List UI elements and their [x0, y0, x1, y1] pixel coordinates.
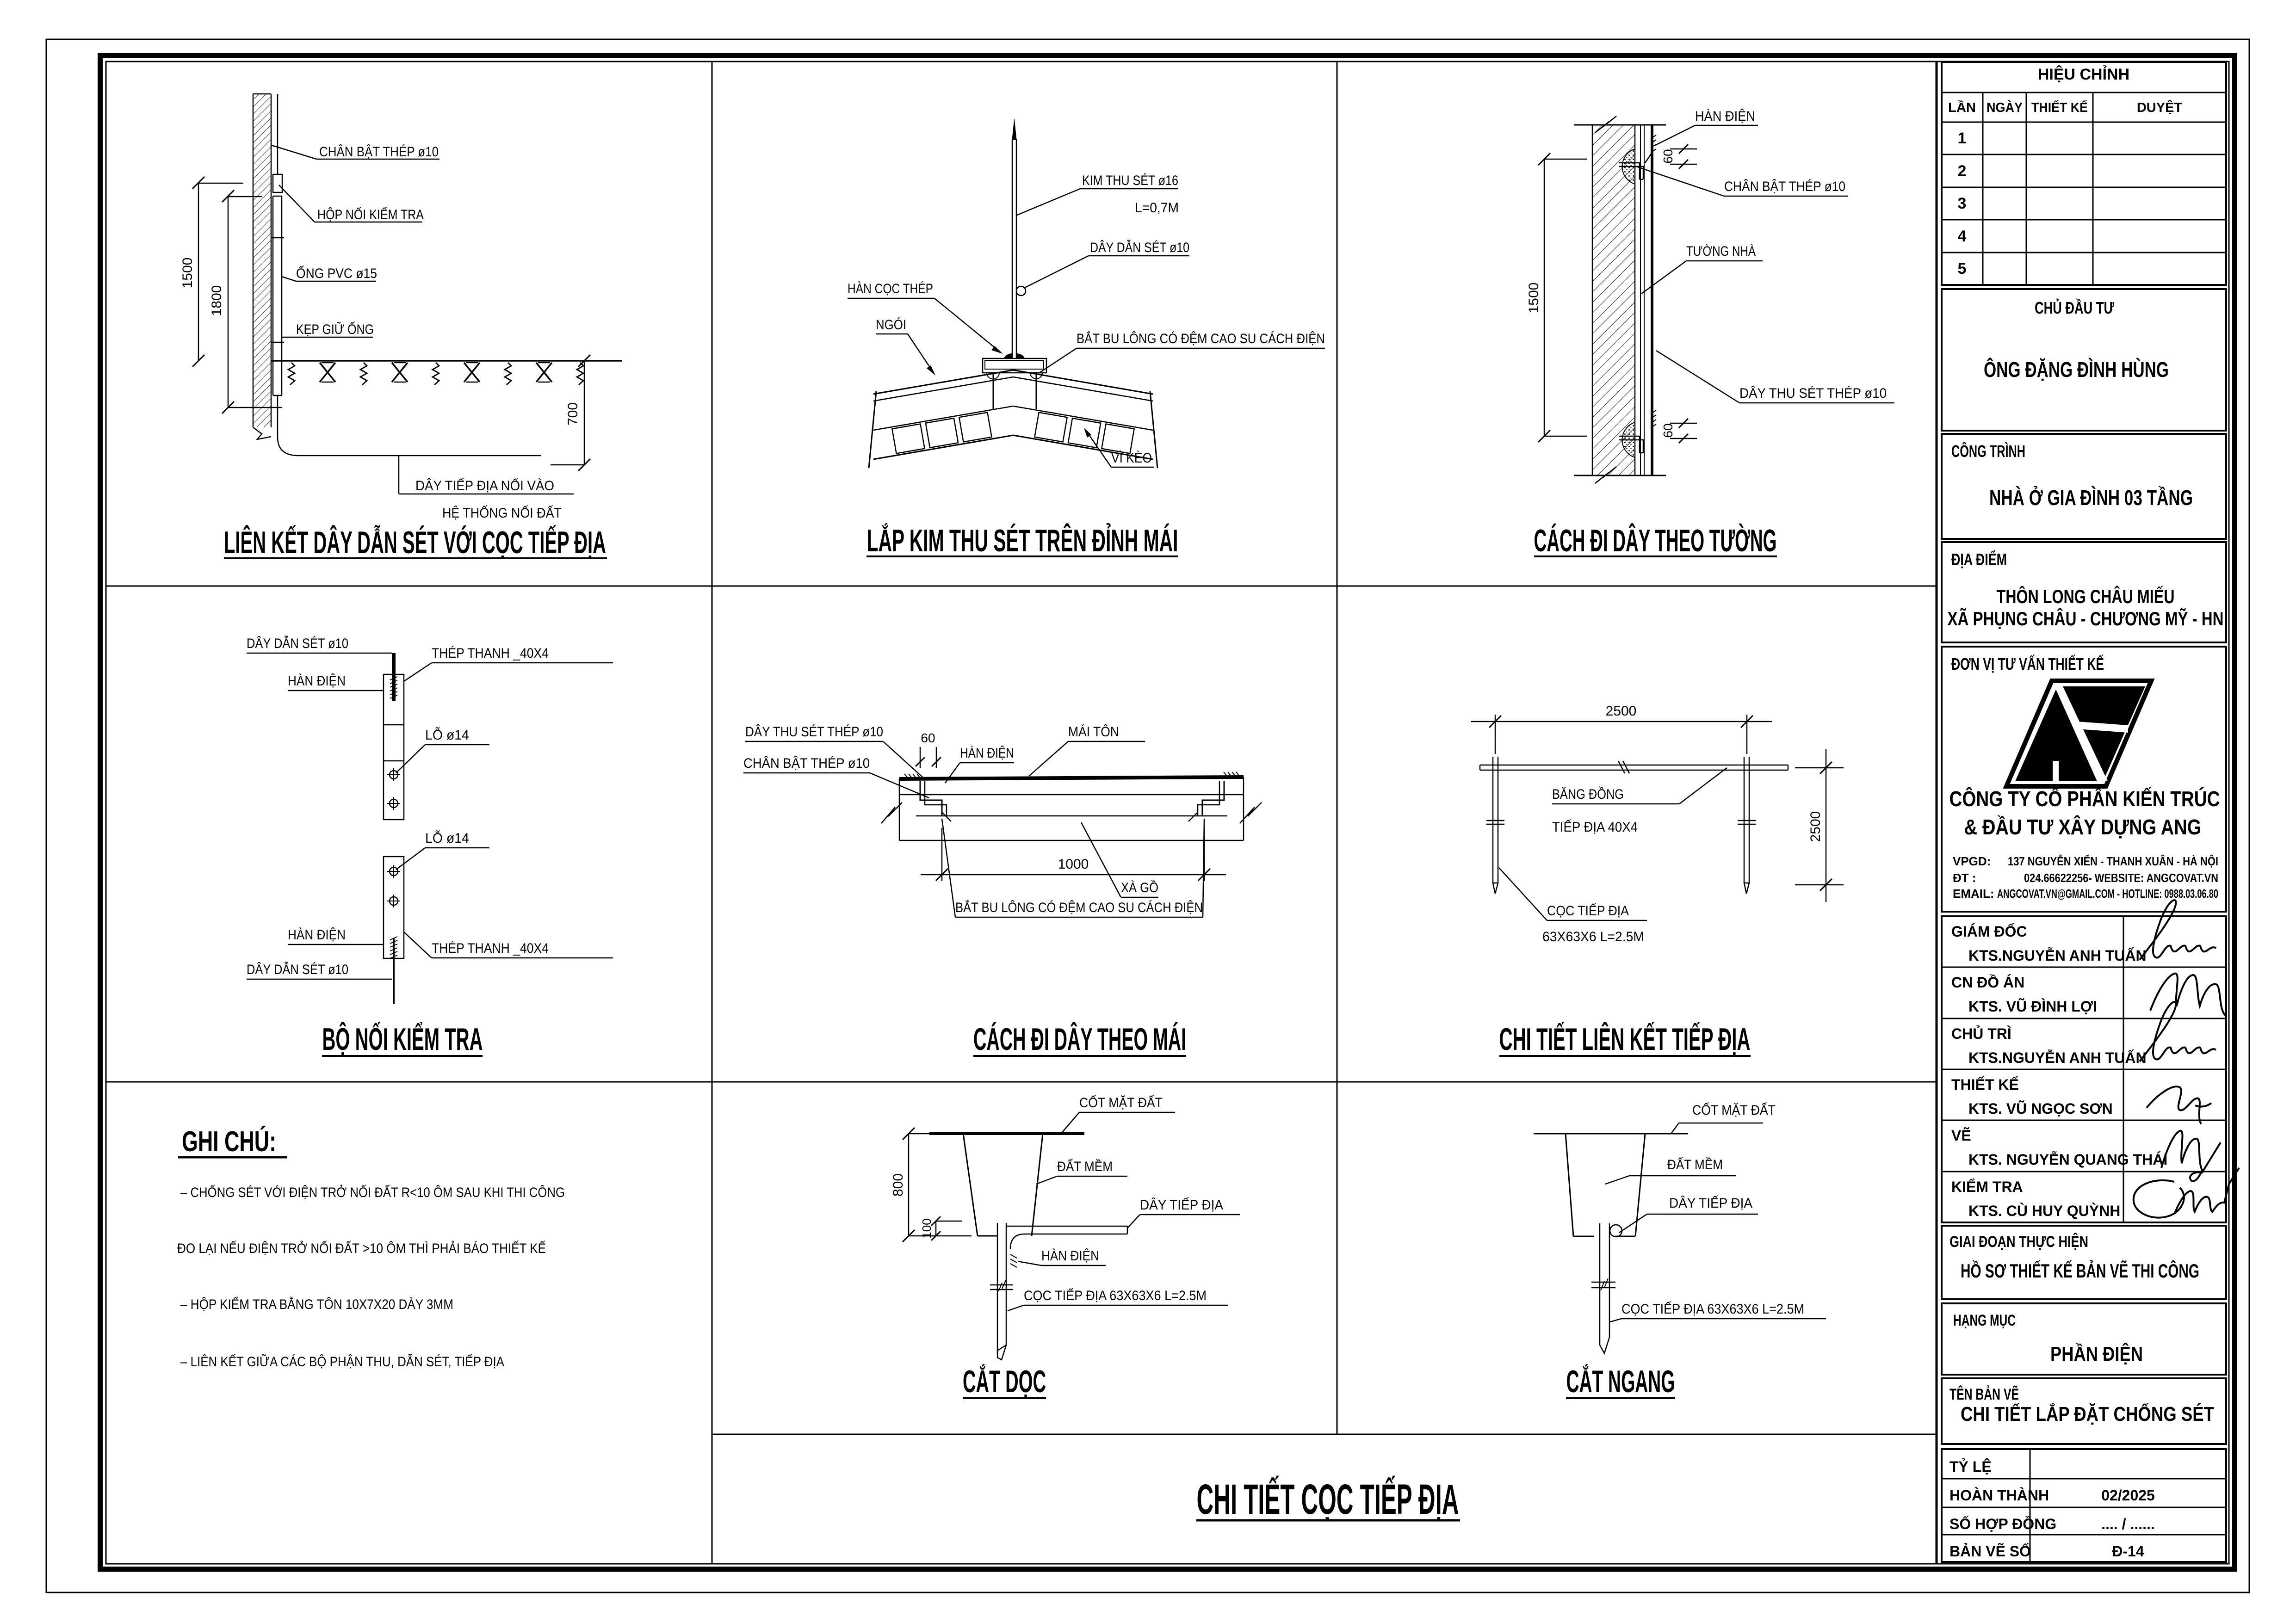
svg-text:CHỦ TRÌ: CHỦ TRÌ	[1951, 1025, 2011, 1042]
svg-text:HÀN ĐIỆN: HÀN ĐIỆN	[960, 746, 1014, 761]
svg-text:ÔNG ĐẶNG ĐÌNH HÙNG: ÔNG ĐẶNG ĐÌNH HÙNG	[1984, 358, 2169, 382]
svg-text:CN ĐỒ ÁN: CN ĐỒ ÁN	[1951, 974, 2024, 991]
svg-text:KIỂM TRA: KIỂM TRA	[1951, 1179, 2023, 1195]
svg-text:XÀ GỒ: XÀ GỒ	[1121, 880, 1158, 895]
svg-text:NHÀ Ở GIA ĐÌNH 03 TẦNG: NHÀ Ở GIA ĐÌNH 03 TẦNG	[1989, 486, 2193, 510]
svg-text:KTS. NGUYỄN QUANG THÁI: KTS. NGUYỄN QUANG THÁI	[1968, 1151, 2167, 1168]
svg-text:KẸP GIỮ ỐNG: KẸP GIỮ ỐNG	[296, 321, 374, 337]
svg-text:2500: 2500	[1606, 704, 1637, 719]
svg-text:HỒ SƠ THIẾT KẾ BẢN VẼ THI CÔNG: HỒ SƠ THIẾT KẾ BẢN VẼ THI CÔNG	[1961, 1259, 2199, 1282]
svg-text:60: 60	[1661, 423, 1675, 438]
svg-text:CHÂN BẬT THÉP ø10: CHÂN BẬT THÉP ø10	[319, 144, 439, 160]
svg-text:LẮP KIM THU SÉT TRÊN ĐỈNH MÁI: LẮP KIM THU SÉT TRÊN ĐỈNH MÁI	[867, 523, 1178, 558]
svg-text:GHI CHÚ:: GHI CHÚ:	[182, 1126, 276, 1158]
svg-text:TƯỜNG NHÀ: TƯỜNG NHÀ	[1686, 244, 1756, 259]
svg-text:CHỦ ĐẦU TƯ: CHỦ ĐẦU TƯ	[2035, 298, 2114, 317]
svg-text:DÂY THU SÉT THÉP ø10: DÂY THU SÉT THÉP ø10	[1739, 386, 1887, 401]
svg-text:HỆ THỐNG NỐI ĐẤT: HỆ THỐNG NỐI ĐẤT	[442, 505, 562, 521]
svg-text:BẮT BU LÔNG CÓ ĐỆM CAO SU CÁCH: BẮT BU LÔNG CÓ ĐỆM CAO SU CÁCH ĐIỆN	[955, 900, 1203, 915]
svg-text:SỐ HỢP ĐỒNG: SỐ HỢP ĐỒNG	[1949, 1516, 2056, 1532]
svg-text:700: 700	[565, 402, 581, 426]
svg-text:60: 60	[921, 731, 935, 745]
svg-text:DÂY TIẾP ĐỊA: DÂY TIẾP ĐỊA	[1140, 1197, 1223, 1213]
svg-text:DÂY DẪN SÉT ø10: DÂY DẪN SÉT ø10	[247, 962, 348, 977]
svg-text:LỖ ø14: LỖ ø14	[425, 830, 469, 846]
svg-text:DÂY DẪN SÉT ø10: DÂY DẪN SÉT ø10	[1090, 240, 1189, 255]
svg-text:.... / ......: .... / ......	[2101, 1516, 2155, 1532]
svg-text:VPGD:: VPGD:	[1953, 854, 1991, 868]
svg-text:DÂY THU SÉT THÉP ø10: DÂY THU SÉT THÉP ø10	[745, 724, 883, 740]
svg-text:ĐƠN VỊ TƯ VẤN THIẾT KẾ: ĐƠN VỊ TƯ VẤN THIẾT KẾ	[1951, 654, 2104, 673]
svg-text:1: 1	[1958, 130, 1967, 147]
svg-text:63X63X6 L=2.5M: 63X63X6 L=2.5M	[1542, 929, 1644, 944]
svg-text:KTS.NGUYỄN ANH TUẤN: KTS.NGUYỄN ANH TUẤN	[1968, 947, 2147, 964]
svg-text:L=0,7M: L=0,7M	[1135, 200, 1179, 216]
svg-text:KTS. VŨ ĐÌNH LỢI: KTS. VŨ ĐÌNH LỢI	[1968, 998, 2097, 1015]
svg-text:DÂY TIẾP ĐỊA: DÂY TIẾP ĐỊA	[1669, 1195, 1752, 1211]
svg-text:TỶ LỆ: TỶ LỆ	[1949, 1458, 1992, 1475]
svg-text:2500: 2500	[1808, 811, 1823, 842]
svg-text:CHI TIẾT LIÊN KẾT TIẾP ĐỊA: CHI TIẾT LIÊN KẾT TIẾP ĐỊA	[1499, 1021, 1751, 1057]
svg-text:THÉP THANH _40X4: THÉP THANH _40X4	[432, 941, 549, 956]
svg-text:CÔNG TY CỔ PHẦN KIẾN TRÚC: CÔNG TY CỔ PHẦN KIẾN TRÚC	[1949, 787, 2220, 811]
svg-text:CỌC TIẾP ĐỊA 63X63X6 L=2.5M: CỌC TIẾP ĐỊA 63X63X6 L=2.5M	[1024, 1288, 1207, 1303]
svg-text:3: 3	[1958, 195, 1967, 212]
svg-text:– LIÊN KẾT GIỮA CÁC BỘ PHẬN T: – LIÊN KẾT GIỮA CÁC BỘ PHẬN THU, DẪN SÉT…	[180, 1354, 504, 1370]
svg-text:CÁCH ĐI DÂY THEO MÁI: CÁCH ĐI DÂY THEO MÁI	[973, 1021, 1186, 1057]
svg-text:60: 60	[1661, 149, 1675, 163]
svg-text:THIẾT KẾ: THIẾT KẾ	[2031, 99, 2088, 115]
svg-text:DÂY DẪN SÉT ø10: DÂY DẪN SÉT ø10	[247, 636, 348, 651]
svg-text:024.66622256- WEBSITE: ANGCOVA: 024.66622256- WEBSITE: ANGCOVAT.VN	[2024, 871, 2218, 885]
svg-text:ĐO LẠI NẾU ĐIỆN TRỞ NỐI ĐẤT >1: ĐO LẠI NẾU ĐIỆN TRỞ NỐI ĐẤT >10 ÔM THÌ P…	[177, 1240, 546, 1256]
svg-text:02/2025: 02/2025	[2101, 1487, 2155, 1504]
svg-text:TIẾP ĐỊA 40X4: TIẾP ĐỊA 40X4	[1552, 819, 1638, 835]
svg-text:CHÂN BẬT THÉP ø10: CHÂN BẬT THÉP ø10	[743, 756, 870, 771]
svg-text:LẦN: LẦN	[1948, 99, 1976, 115]
svg-text:KTS. VŨ NGỌC SƠN: KTS. VŨ NGỌC SƠN	[1968, 1100, 2113, 1117]
svg-text:DÂY TIẾP ĐỊA NỐI VÀO: DÂY TIẾP ĐỊA NỐI VÀO	[415, 478, 554, 494]
svg-text:XÃ PHỤNG CHÂU - CHƯƠNG MỸ - HN: XÃ PHỤNG CHÂU - CHƯƠNG MỸ - HN	[1948, 607, 2224, 629]
svg-text:CẮT DỌC: CẮT DỌC	[963, 1364, 1046, 1399]
svg-text:THÉP THANH _40X4: THÉP THANH _40X4	[432, 646, 549, 661]
svg-text:ỐNG PVC ø15: ỐNG PVC ø15	[296, 265, 377, 281]
svg-text:TÊN BẢN VẼ: TÊN BẢN VẼ	[1949, 1386, 2019, 1403]
svg-text:HÀN ĐIỆN: HÀN ĐIỆN	[1695, 109, 1755, 124]
svg-text:2: 2	[1958, 162, 1967, 180]
svg-text:1000: 1000	[1058, 857, 1089, 872]
svg-text:DUYỆT: DUYỆT	[2137, 99, 2183, 115]
svg-text:HIỆU CHỈNH: HIỆU CHỈNH	[2038, 66, 2129, 83]
svg-text:CHI TIẾT LẮP ĐẶT CHỐNG SÉT: CHI TIẾT LẮP ĐẶT CHỐNG SÉT	[1961, 1402, 2214, 1426]
svg-text:& ĐẦU TƯ XÂY DỰNG ANG: & ĐẦU TƯ XÂY DỰNG ANG	[1964, 815, 2202, 839]
svg-text:1500: 1500	[180, 258, 195, 289]
svg-text:KIM THU SÉT ø16: KIM THU SÉT ø16	[1082, 173, 1178, 188]
svg-text:100: 100	[920, 1218, 934, 1238]
svg-text:ANGCOVAT.VN@GMAIL.COM - HOTLIN: ANGCOVAT.VN@GMAIL.COM - HOTLINE: 0988.03…	[1997, 887, 2218, 901]
svg-text:HÀN ĐIỆN: HÀN ĐIỆN	[288, 927, 346, 943]
svg-text:CỌC TIẾP ĐỊA 63X63X6 L=2.5M: CỌC TIẾP ĐỊA 63X63X6 L=2.5M	[1621, 1301, 1804, 1317]
svg-text:KTS.NGUYỄN ANH TUẤN: KTS.NGUYỄN ANH TUẤN	[1968, 1049, 2147, 1066]
svg-text:HÀN CỌC THÉP: HÀN CỌC THÉP	[848, 281, 933, 296]
svg-text:CỐT MẶT ĐẤT: CỐT MẶT ĐẤT	[1079, 1095, 1163, 1111]
svg-text:800: 800	[891, 1173, 906, 1197]
svg-text:BĂNG ĐỒNG: BĂNG ĐỒNG	[1552, 786, 1624, 802]
svg-text:CẮT NGANG: CẮT NGANG	[1566, 1364, 1675, 1399]
svg-text:HOÀN THÀNH: HOÀN THÀNH	[1949, 1487, 2049, 1504]
svg-text:HÀN ĐIỆN: HÀN ĐIỆN	[288, 673, 346, 689]
svg-text:BẮT BU LÔNG CÓ ĐỆM CAO SU CÁCH: BẮT BU LÔNG CÓ ĐỆM CAO SU CÁCH ĐIỆN	[1077, 331, 1325, 346]
svg-text:THÔN LONG CHÂU MIẾU: THÔN LONG CHÂU MIẾU	[1997, 585, 2175, 607]
svg-text:CHÂN BẬT THÉP ø10: CHÂN BẬT THÉP ø10	[1724, 179, 1845, 194]
svg-text:VÌ KÈO: VÌ KÈO	[1111, 450, 1152, 466]
svg-text:CÔNG TRÌNH: CÔNG TRÌNH	[1951, 441, 2025, 461]
svg-text:LIÊN KẾT DÂY DẪN SÉT VỚI CỌC T: LIÊN KẾT DÂY DẪN SÉT VỚI CỌC TIẾP ĐỊA	[224, 525, 606, 560]
svg-text:CỐT MẶT ĐẤT: CỐT MẶT ĐẤT	[1692, 1102, 1776, 1118]
svg-text:CHI TIẾT CỌC TIẾP ĐỊA: CHI TIẾT CỌC TIẾP ĐỊA	[1197, 1475, 1459, 1523]
svg-text:137 NGUYỄN XIỂN - THANH XUÂN: 137 NGUYỄN XIỂN - THANH XUÂN - HÀ NỘI	[2008, 854, 2218, 868]
svg-text:4: 4	[1958, 228, 1967, 245]
svg-text:BẢN VẼ SỐ: BẢN VẼ SỐ	[1949, 1543, 2031, 1560]
svg-text:PHẦN ĐIỆN: PHẦN ĐIỆN	[2050, 1342, 2143, 1365]
svg-text:ĐẤT MỀM: ĐẤT MỀM	[1667, 1157, 1723, 1173]
svg-text:1800: 1800	[209, 285, 224, 316]
svg-text:BỘ NỐI KIỂM TRA: BỘ NỐI KIỂM TRA	[322, 1021, 483, 1057]
svg-text:NGÓI: NGÓI	[876, 317, 906, 333]
svg-text:GIAI ĐOẠN THỰC HIỆN: GIAI ĐOẠN THỰC HIỆN	[1949, 1233, 2088, 1251]
svg-text:EMAIL:: EMAIL:	[1953, 887, 1994, 901]
svg-text:LỖ ø14: LỖ ø14	[425, 727, 469, 743]
svg-text:MÁI TÔN: MÁI TÔN	[1068, 724, 1119, 740]
svg-text:ĐẤT MỀM: ĐẤT MỀM	[1057, 1159, 1113, 1174]
svg-text:HẠNG MỤC: HẠNG MỤC	[1953, 1312, 2016, 1329]
svg-text:Đ-14: Đ-14	[2112, 1543, 2144, 1560]
svg-text:HỘP NỐI KIỂM TRA: HỘP NỐI KIỂM TRA	[317, 207, 424, 222]
svg-text:VẼ: VẼ	[1951, 1127, 1971, 1144]
svg-text:– HỘP KIỂM TRA BẰNG TÔN 10X7X: – HỘP KIỂM TRA BẰNG TÔN 10X7X20 DÀY 3MM	[180, 1296, 453, 1312]
svg-text:CỌC TIẾP ĐỊA: CỌC TIẾP ĐỊA	[1547, 903, 1629, 919]
svg-text:KTS. CÙ HUY QUỲNH: KTS. CÙ HUY QUỲNH	[1968, 1203, 2120, 1219]
svg-text:NGÀY: NGÀY	[1987, 99, 2023, 115]
svg-text:HÀN ĐIỆN: HÀN ĐIỆN	[1041, 1248, 1099, 1264]
svg-text:– CHỐNG SÉT VỚI ĐIỆN TRỞ NỐI: – CHỐNG SÉT VỚI ĐIỆN TRỞ NỐI ĐẤT R<10 ÔM…	[180, 1185, 565, 1200]
svg-text:GIÁM ĐỐC: GIÁM ĐỐC	[1951, 923, 2027, 940]
svg-text:CÁCH ĐI DÂY THEO TƯỜNG: CÁCH ĐI DÂY THEO TƯỜNG	[1534, 523, 1777, 558]
svg-text:1500: 1500	[1526, 283, 1541, 314]
svg-text:ĐỊA ĐIỂM: ĐỊA ĐIỂM	[1951, 549, 2007, 569]
svg-text:5: 5	[1958, 260, 1967, 278]
svg-text:THIẾT KẾ: THIẾT KẾ	[1951, 1076, 2019, 1093]
svg-text:ĐT :: ĐT :	[1953, 871, 1976, 885]
